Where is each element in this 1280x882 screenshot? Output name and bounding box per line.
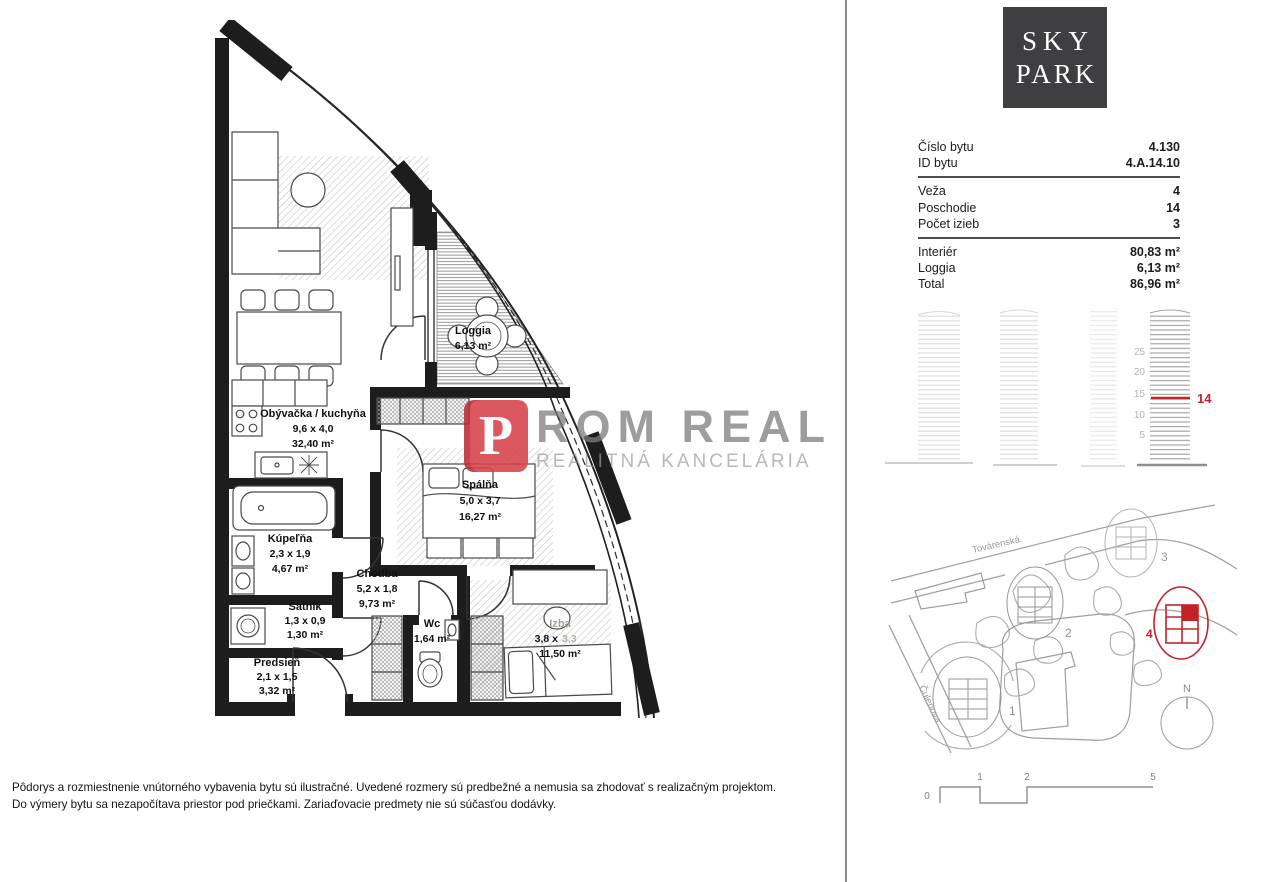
info-row-veza: Veža4 [918,183,1180,199]
svg-text:9,6 x 4,0: 9,6 x 4,0 [293,423,334,435]
watermark-texts: ROM REAL REALITNÁ KANCELÁRIA [536,400,832,473]
north-label: N [1183,683,1191,695]
room-label-predsien: Predsieň 2,1 x 1,5 3,32 m² [254,657,301,697]
svg-text:11,50 m²: 11,50 m² [539,648,581,660]
svg-text:4,67 m²: 4,67 m² [272,563,309,575]
facade-wall-segment [631,624,652,714]
tower-label-2: 2 [1065,626,1072,640]
tower-elevation-2 [1000,313,1038,460]
watermark-subtitle: REALITNÁ KANCELÁRIA [536,451,832,473]
svg-text:Wc: Wc [424,618,441,630]
info-row-loggia: Loggia6,13 m² [918,260,1180,276]
tower-label-1: 1 [1009,704,1016,718]
svg-text:25: 25 [1134,347,1146,358]
svg-text:Loggia: Loggia [455,325,492,337]
svg-text:9,73 m²: 9,73 m² [359,598,396,610]
stove [232,406,262,436]
svg-text:Izba: Izba [549,618,571,630]
tower-elevation-4 [1150,313,1190,460]
compass: N [1161,683,1213,749]
svg-text:1,30 m²: 1,30 m² [287,629,324,641]
svg-text:16,27 m²: 16,27 m² [459,511,502,523]
info-divider [918,176,1180,178]
svg-text:1,3 x 0,9: 1,3 x 0,9 [285,615,326,627]
svg-text:Spálňa: Spálňa [462,479,499,491]
tv-unit [391,208,413,326]
watermark-p-letter: P [479,404,513,468]
highlighted-floor-label: 14 [1197,391,1212,406]
svg-text:Predsieň: Predsieň [254,657,301,669]
facade-wall-segment [225,24,287,74]
svg-text:1,64 m²: 1,64 m² [414,633,451,645]
svg-text:2,1 x 1,5: 2,1 x 1,5 [257,671,298,683]
tower-marker-2 [1007,567,1063,639]
svg-text:5,2 x 1,8: 5,2 x 1,8 [357,583,398,595]
apartment-info-table: Číslo bytu4.130 ID bytu4.A.14.10 Veža4 P… [918,139,1180,293]
promreal-watermark: P ROM REAL REALITNÁ KANCELÁRIA [464,400,832,473]
dishwasher-symbol [299,455,319,475]
watermark-name: ROM REAL [536,404,832,450]
street-label-tovarenska: Továrenská [971,534,1022,556]
room-label-kupelna: Kúpeľňa 2,3 x 1,9 4,67 m² [268,533,313,575]
bathtub [233,486,335,530]
svg-text:Šatník: Šatník [288,600,322,613]
scale-bar: 0 1 2 5 [905,763,1175,808]
tower-label-4: 4 [1146,627,1153,641]
info-divider [918,237,1180,239]
hall-wardrobe [372,616,402,700]
info-row-total: Total86,96 m² [918,276,1180,292]
washing-machine [231,608,265,644]
logo-line-2: PARK [1013,59,1098,90]
buildings [915,573,1134,740]
coffee-table [291,173,325,207]
wc-door-arc [419,581,453,615]
bathroom-sinks [232,536,254,594]
skypark-logo: SKY PARK [1003,7,1107,108]
tower-marker-1 [933,657,1001,737]
tower-marker-3 [1105,509,1157,577]
svg-text:20: 20 [1134,367,1146,378]
svg-text:5: 5 [1139,430,1145,441]
izba-wardrobe [471,616,503,700]
svg-text:2: 2 [1024,772,1030,783]
info-row-cislo-bytu: Číslo bytu4.130 [918,139,1180,155]
tower-marker-4-highlighted [1154,587,1208,659]
svg-text:3,32 m²: 3,32 m² [259,685,296,697]
room-label-obyvacka: Obývačka / kuchyňa 9,6 x 4,0 32,40 m² [260,408,367,450]
svg-text:3,3: 3,3 [562,633,577,645]
site-map: 1 2 3 4 Továrenská Čulenova N [885,495,1245,780]
floor-scale-labels: 25 20 15 10 5 [1134,347,1146,441]
svg-text:32,40 m²: 32,40 m² [292,438,335,450]
disclaimer-line-2: Do výmery bytu sa nezapočítava priestor … [12,796,840,813]
svg-text:0: 0 [924,791,930,802]
svg-text:5: 5 [1150,772,1156,783]
svg-text:Chodba: Chodba [357,568,399,580]
svg-text:2,3 x 1,9: 2,3 x 1,9 [270,548,311,560]
svg-text:10: 10 [1134,410,1146,421]
svg-text:Kúpeľňa: Kúpeľňa [268,533,313,545]
tower-label-3: 3 [1161,550,1168,564]
room-label-chodba: Chodba 5,2 x 1,8 9,73 m² [357,568,399,610]
disclaimer-line-1: Pôdorys a rozmiestnenie vnútorného vybav… [12,779,840,796]
building-elevation: 25 20 15 10 5 14 [885,305,1225,470]
logo-line-1: SKY [1016,26,1094,57]
page-divider [845,0,847,882]
tower-elevation-3 [1090,310,1117,460]
tower-elevation-1 [918,315,960,460]
svg-text:3,8 x: 3,8 x [535,633,559,645]
promreal-p-icon: P [464,400,528,472]
info-row-interier: Interiér80,83 m² [918,244,1180,260]
info-row-poschodie: Poschodie14 [918,200,1180,216]
svg-text:6,13 m²: 6,13 m² [455,340,492,352]
svg-text:5,0 x 3,7: 5,0 x 3,7 [460,495,501,507]
disclaimer: Pôdorys a rozmiestnenie vnútorného vybav… [12,779,840,813]
toilet [418,652,442,687]
dining-table [237,312,341,364]
svg-text:1: 1 [977,772,983,783]
floor-plan-drawing: Obývačka / kuchyňa 9,6 x 4,0 32,40 m² Lo… [205,20,705,720]
info-row-id-bytu: ID bytu4.A.14.10 [918,155,1180,171]
floorplan-sheet: Obývačka / kuchyňa 9,6 x 4,0 32,40 m² Lo… [0,0,1280,882]
svg-text:15: 15 [1134,389,1146,400]
street-label-culenova: Čulenova [916,684,943,726]
svg-text:Obývačka / kuchyňa: Obývačka / kuchyňa [260,408,367,420]
room-label-satnik: Šatník 1,3 x 0,9 1,30 m² [285,600,326,641]
room-label-spalna: Spálňa 5,0 x 3,7 16,27 m² [459,479,502,523]
info-row-pocet-izieb: Počet izieb3 [918,216,1180,232]
